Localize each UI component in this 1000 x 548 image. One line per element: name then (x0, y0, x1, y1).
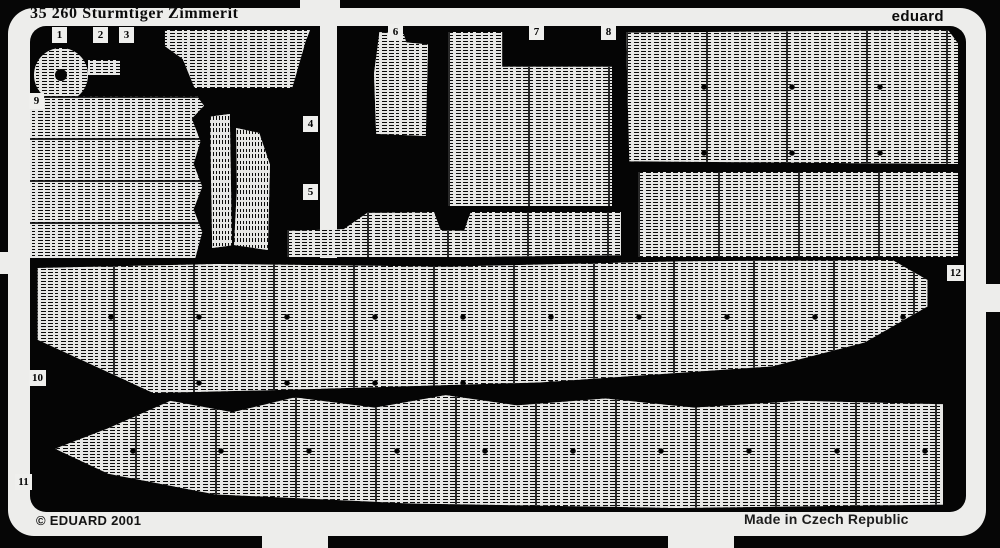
part-tag-5: 5 (303, 184, 318, 200)
copyright-text: © EDUARD 2001 (36, 513, 141, 528)
part-tag-1: 1 (52, 27, 67, 43)
frame-tab-bottom-right (668, 532, 734, 548)
origin-text: Made in Czech Republic (744, 511, 909, 527)
etched-left-hull-panel (30, 96, 204, 258)
part-tag-4: 4 (303, 116, 318, 132)
part-tag-10: 10 (29, 370, 46, 386)
part-tag-2: 2 (93, 27, 108, 43)
etched-panel-8-lower (638, 172, 958, 257)
sheet-title: 35 260 Sturmtiger Zimmerit (30, 5, 239, 23)
disc-center-hole (55, 69, 67, 81)
part-tag-6: 6 (388, 24, 403, 40)
sprue-runner-vertical (320, 12, 337, 258)
part-tag-12: 12 (947, 265, 964, 281)
part-tag-9: 9 (29, 93, 44, 109)
part-tag-3: 3 (119, 27, 134, 43)
photoetch-sheet-photo: 1 2 3 4 5 6 7 8 9 10 11 12 35 260 Sturmt… (0, 0, 1000, 548)
etched-panel-6 (374, 32, 428, 136)
part-tag-8: 8 (601, 24, 616, 40)
etched-strip-cluster-a (210, 114, 232, 248)
frame-tab-left (0, 252, 12, 274)
etched-panel-8-upper (626, 30, 958, 164)
frame-tab-top (300, 0, 340, 12)
part-tag-7: 7 (529, 24, 544, 40)
etched-small-strip-part (88, 60, 120, 75)
frame-tab-bottom-left (262, 532, 328, 548)
part-tag-11: 11 (15, 474, 32, 490)
frame-tab-right (986, 284, 1000, 312)
brand-logo-text: eduard (892, 8, 944, 25)
